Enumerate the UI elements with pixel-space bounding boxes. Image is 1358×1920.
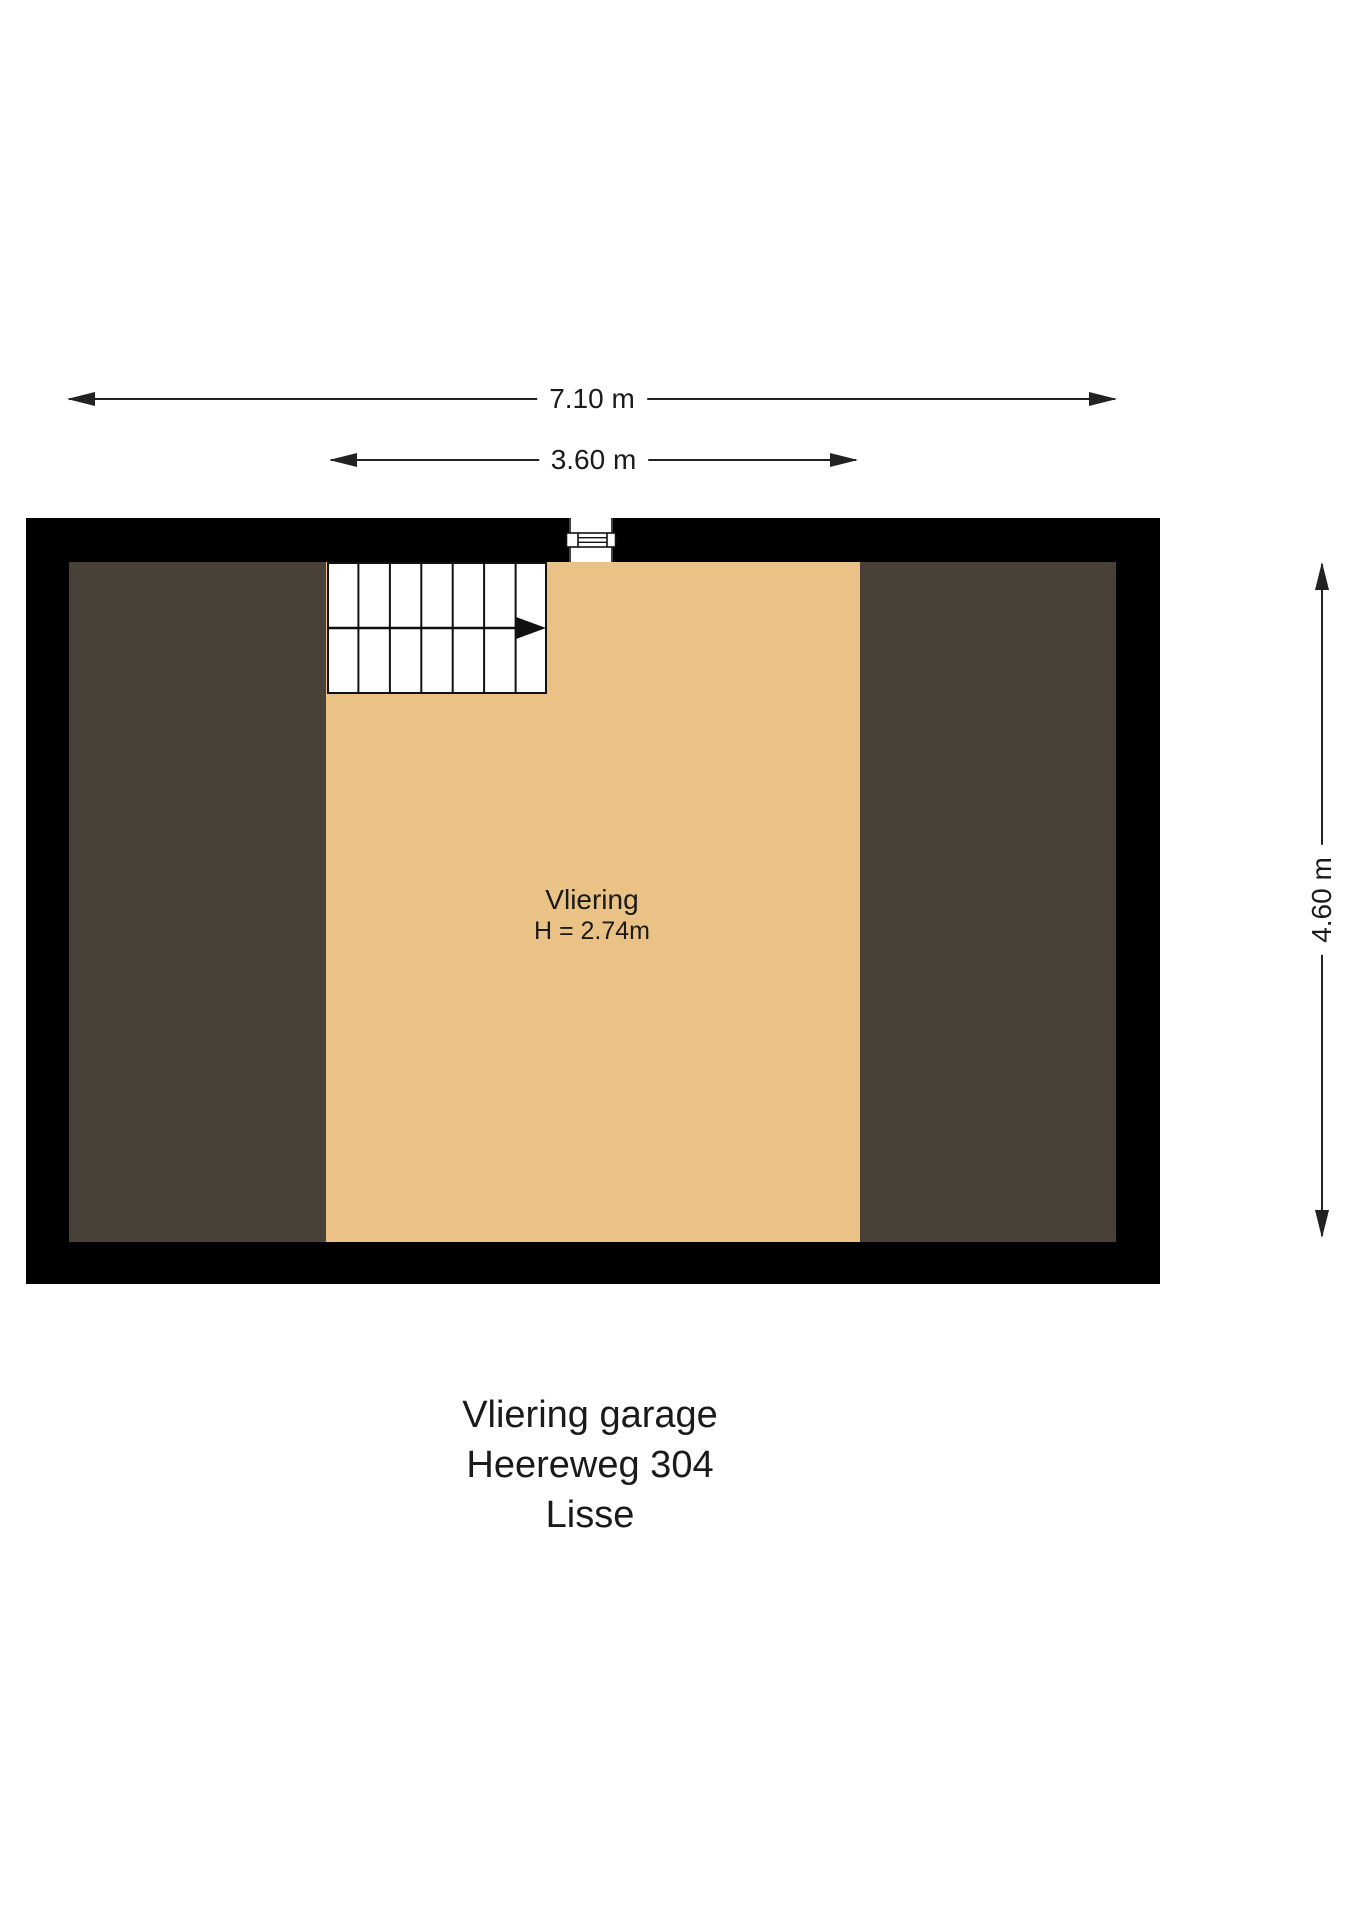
dimension-room-width: 3.60 m xyxy=(329,447,858,473)
dimension-total-depth: 4.60 m xyxy=(1309,562,1335,1238)
dimension-total-width: 7.10 m xyxy=(67,386,1117,412)
room-name: Vliering xyxy=(534,884,650,916)
room-height-label: H = 2.74m xyxy=(534,916,650,946)
arrow-right-icon xyxy=(1089,392,1117,406)
title-line-2: Heereweg 304 xyxy=(462,1440,718,1490)
dimension-total-depth-label: 4.60 m xyxy=(1307,845,1337,955)
arrow-down-icon xyxy=(1315,1210,1329,1238)
roof-vent-drawing xyxy=(565,518,617,562)
roof-vent-symbol xyxy=(569,518,613,562)
plan-title: Vliering garage Heereweg 304 Lisse xyxy=(462,1390,718,1540)
dimension-total-width-label: 7.10 m xyxy=(537,384,647,414)
title-line-1: Vliering garage xyxy=(462,1390,718,1440)
staircase xyxy=(327,562,547,694)
arrow-right-icon xyxy=(830,453,858,467)
room-label: Vliering H = 2.74m xyxy=(534,884,650,946)
title-line-3: Lisse xyxy=(462,1490,718,1540)
floorplan-canvas: 7.10 m 3.60 m xyxy=(0,0,1358,1920)
staircase-drawing xyxy=(327,562,547,694)
dimension-room-width-label: 3.60 m xyxy=(539,445,649,475)
